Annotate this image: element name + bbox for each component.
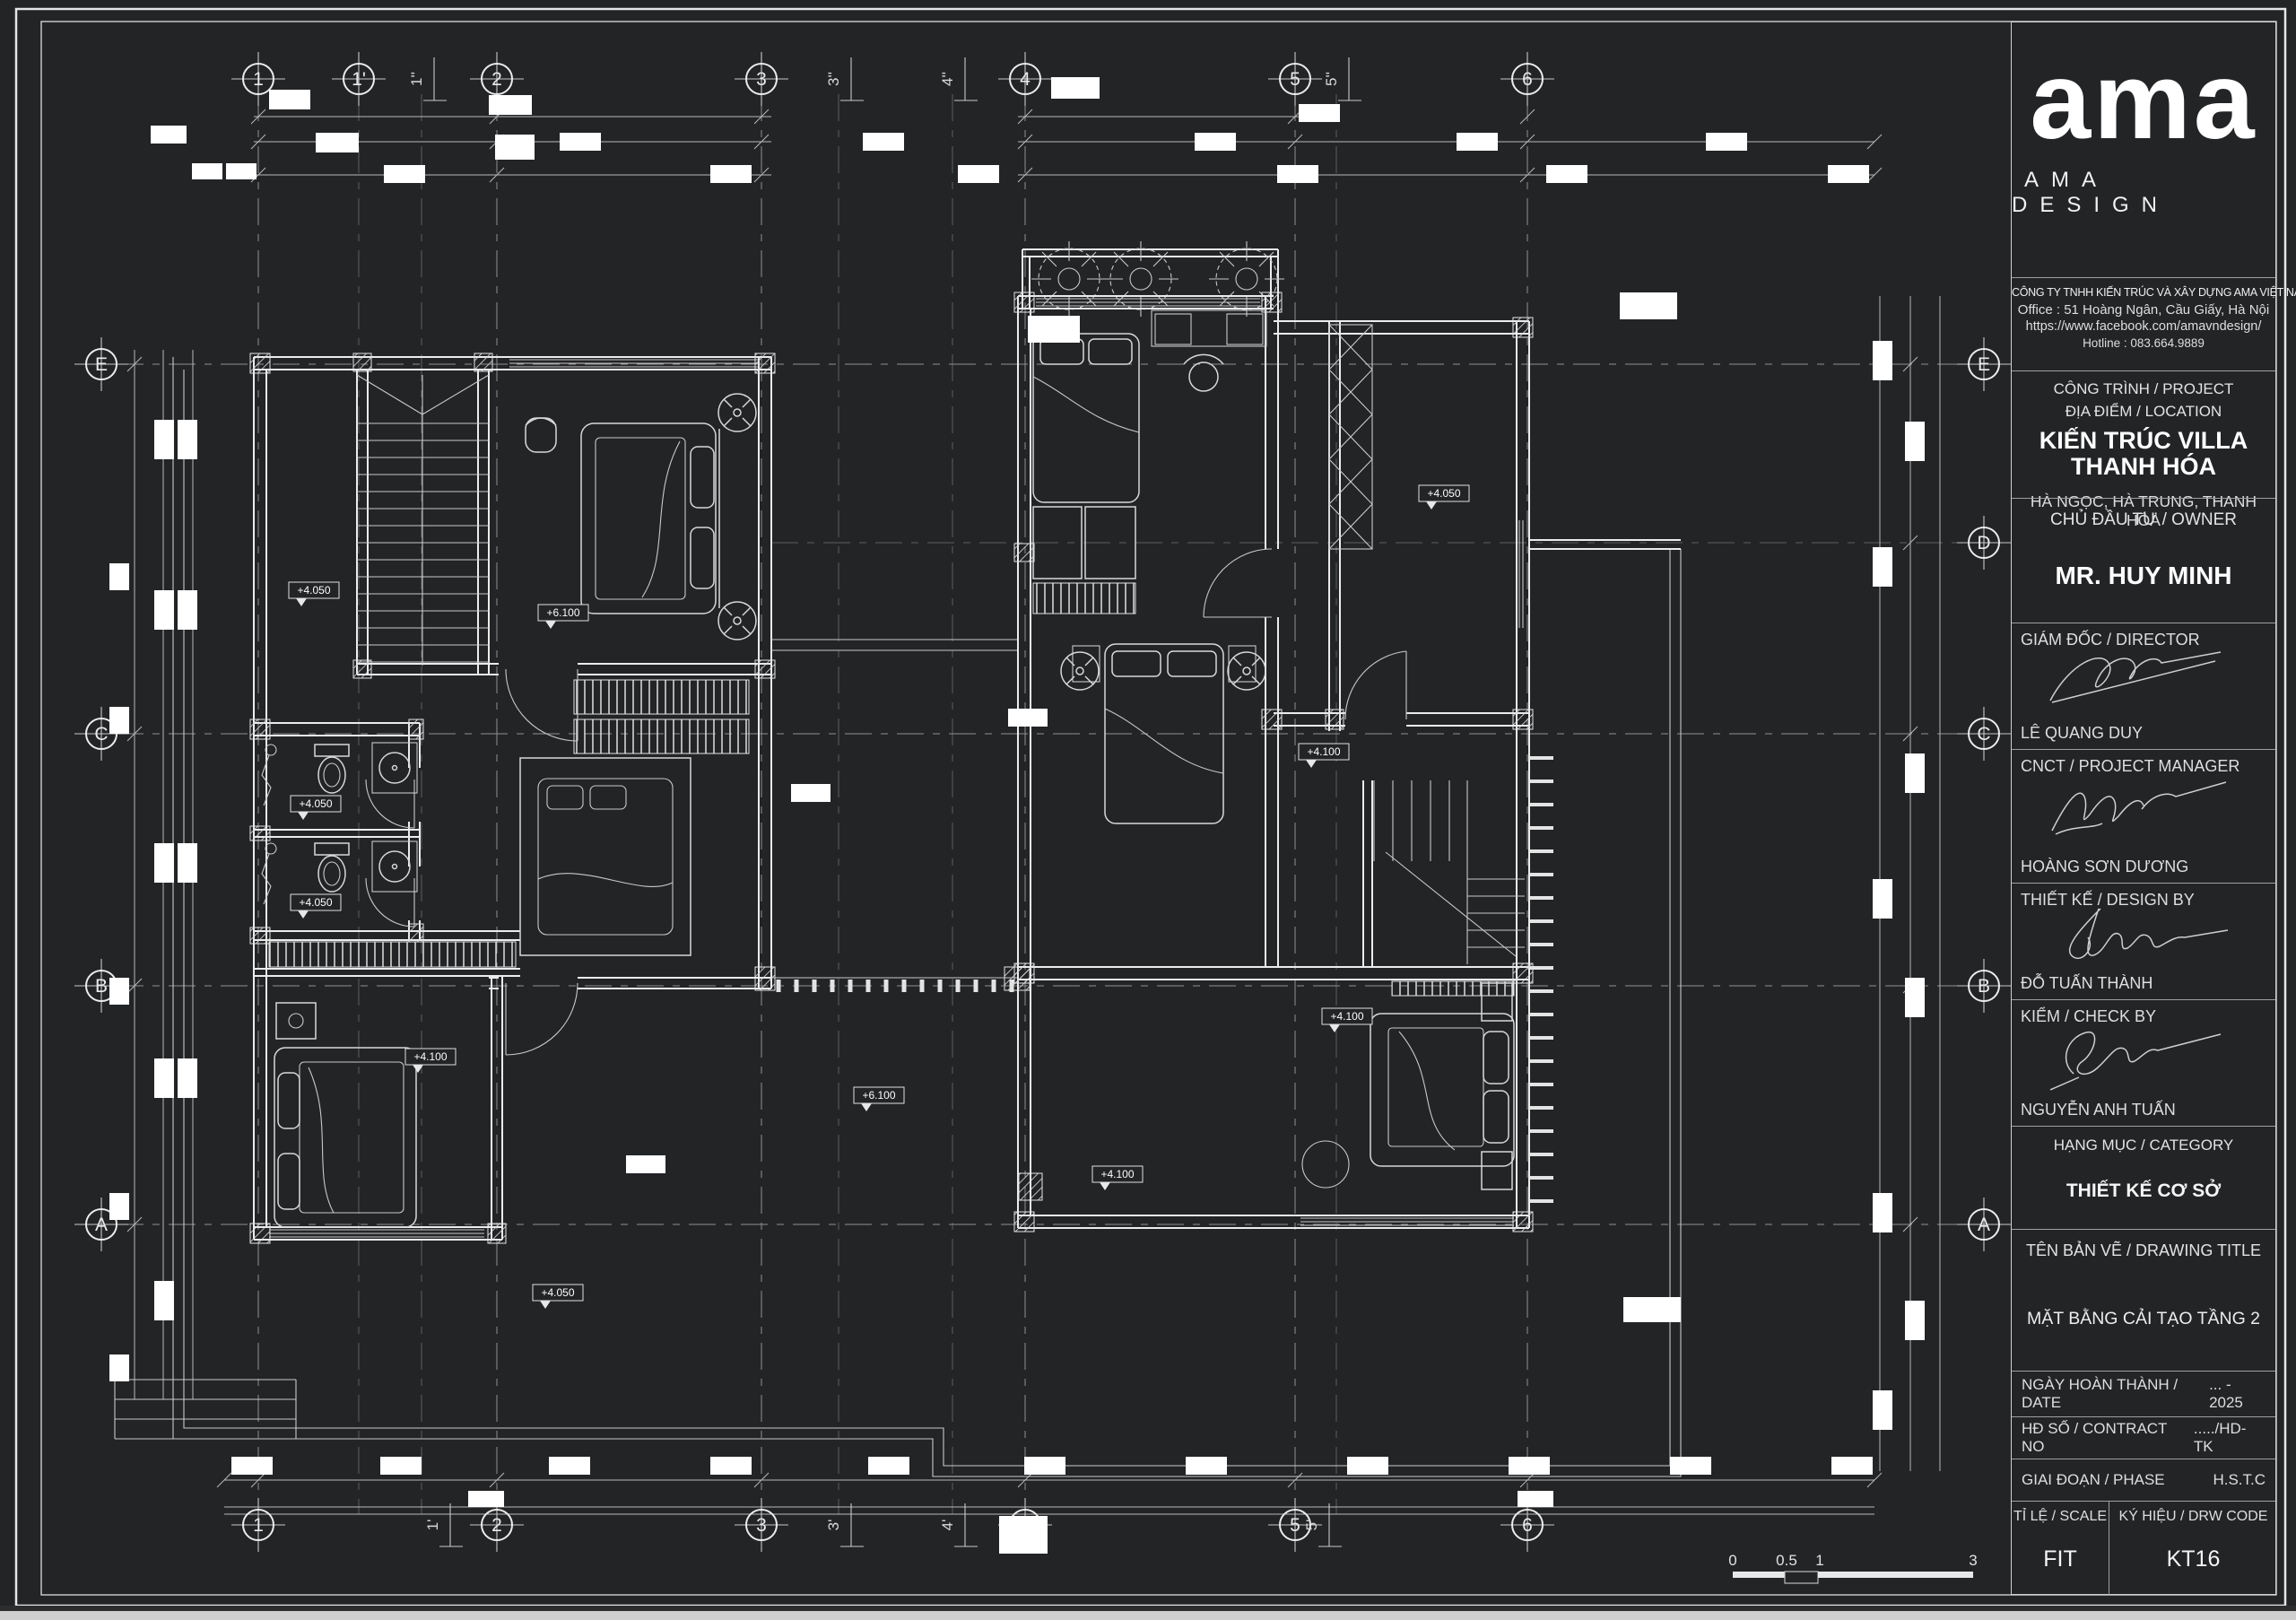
scale-bar: 0 0.5 1 3 (1728, 1552, 1977, 1583)
manager-signature (2043, 771, 2240, 847)
louver-fins (1530, 758, 1553, 1201)
logo-section: ama AMA DESIGN (2012, 22, 2275, 277)
right-block (1014, 241, 1681, 1232)
category-section: HẠNG MỤC / CATEGORY THIẾT KẾ CƠ SỞ (2012, 1126, 2275, 1229)
director-signature (2043, 645, 2240, 713)
project-section: CÔNG TRÌNH / PROJECT ĐỊA ĐIỂM / LOCATION… (2012, 370, 2275, 498)
checker-name: NGUYỄN ANH TUẤN (2021, 1101, 2176, 1119)
contract-value: ...../HD-TK (2194, 1420, 2266, 1456)
bed (274, 1048, 416, 1227)
grid-bubble: 3 (735, 52, 788, 106)
owner-section: CHỦ ĐẦU TƯ / OWNER MR. HUY MINH (2012, 498, 2275, 623)
svg-text:5': 5' (1303, 1520, 1320, 1531)
grid-bubble: 6 (1500, 52, 1554, 106)
svg-text:A: A (95, 1215, 108, 1235)
designer-section: THIẾT KẾ / DESIGN BY ĐỖ TUẤN THÀNH (2012, 883, 2275, 999)
project-name-line2: THANH HÓA (2071, 453, 2216, 480)
company-name: CÔNG TY TNHH KIẾN TRÚC VÀ XÂY DỰNG AMA V… (2012, 286, 2275, 299)
app-background-strip (0, 1611, 2296, 1620)
svg-text:+4.050: +4.050 (299, 797, 332, 810)
svg-text:B: B (95, 976, 108, 997)
grid-bubble: E (74, 337, 128, 391)
terrace-outline (115, 357, 1681, 1476)
wardrobe (574, 719, 749, 753)
owner-name: MR. HUY MINH (2012, 562, 2275, 590)
svg-text:1: 1 (253, 1515, 264, 1536)
door-arc (506, 669, 578, 741)
owner-label: CHỦ ĐẦU TƯ / OWNER (2012, 508, 2275, 533)
toilet-icon (315, 745, 349, 793)
svg-text:+4.100: +4.100 (1307, 745, 1340, 758)
staircase-right (1374, 780, 1525, 964)
grid-sublabel: 3'' (825, 57, 864, 100)
svg-text:4': 4' (939, 1520, 956, 1531)
grid-bubble: 1 (231, 1498, 285, 1552)
logo-subtitle: AMA DESIGN (2012, 168, 2275, 218)
phase-row: GIAI ĐOẠN / PHASE H.S.T.C (2012, 1459, 2275, 1501)
door-arc (506, 983, 578, 1055)
toilet-icon (315, 843, 349, 892)
scale-code-row: TỈ LỆ / SCALE FIT KÝ HIỆU / DRW CODE KT1… (2012, 1501, 2275, 1596)
desk (1152, 310, 1266, 346)
tree-icon (1031, 241, 1107, 317)
grid-bubble: 5 (1268, 52, 1322, 106)
bed (581, 423, 719, 614)
date-row: NGÀY HOÀN THÀNH / DATE ... - 2025 (2012, 1371, 2275, 1416)
date-value: ... - 2025 (2209, 1376, 2266, 1412)
grid-bubble: 4 (998, 52, 1052, 106)
svg-text:1: 1 (1815, 1552, 1823, 1569)
date-label: NGÀY HOÀN THÀNH / DATE (2022, 1376, 2209, 1412)
svg-text:5: 5 (1290, 1515, 1300, 1536)
grid-axes (117, 94, 1969, 1514)
sink-icon (372, 841, 417, 892)
staircase-left (357, 375, 489, 666)
chair (1184, 354, 1223, 391)
door-arc (1204, 549, 1272, 617)
armchair (526, 418, 556, 452)
grid-label: 1 (253, 69, 264, 90)
ceiling-fan-icon (718, 394, 756, 431)
project-name: KIẾN TRÚC VILLA THANH HÓA (2012, 428, 2275, 480)
svg-text:1': 1' (424, 1520, 441, 1531)
grid-bubble: B (1957, 959, 2011, 1013)
svg-text:3: 3 (756, 1515, 767, 1536)
svg-text:+4.050: +4.050 (297, 584, 330, 597)
door-arc (366, 780, 414, 828)
drawing-title: MẶT BẰNG CẢI TẠO TẦNG 2 (2012, 1309, 2275, 1329)
svg-text:5'': 5'' (1323, 72, 1340, 86)
bed (1033, 334, 1139, 502)
grid-sublabel: 1'' (408, 57, 447, 100)
project-name-line1: KIẾN TRÚC VILLA (2039, 427, 2248, 454)
grid-bubble: A (1957, 1198, 2011, 1251)
ceiling-fan-icon (718, 602, 756, 640)
svg-text:+4.050: +4.050 (299, 896, 332, 909)
company-office: Office : 51 Hoàng Ngân, Cầu Giấy, Hà Nội (2012, 302, 2275, 318)
location-label: ĐỊA ĐIỂM / LOCATION (2012, 401, 2275, 423)
checker-signature (2043, 1022, 2240, 1093)
svg-text:E: E (95, 354, 108, 375)
ceiling-fan-icon (1228, 652, 1265, 690)
drw-code-value: KT16 (2109, 1546, 2277, 1572)
grid-sublabel: 5'' (1323, 57, 1361, 100)
svg-text:C: C (94, 724, 108, 745)
closet-column (1329, 325, 1372, 549)
svg-text:+6.100: +6.100 (546, 606, 579, 619)
grid-bubble: E (1957, 337, 2011, 391)
ceiling-fan-icon (1061, 652, 1099, 690)
svg-text:3': 3' (825, 1520, 842, 1531)
tree-icon (1103, 241, 1178, 317)
contract-row: HĐ SỐ / CONTRACT NO ...../HD-TK (2012, 1416, 2275, 1459)
bed (1370, 1014, 1514, 1166)
designer-name: ĐỖ TUẤN THÀNH (2021, 974, 2152, 993)
svg-text:A: A (1978, 1215, 1990, 1235)
door-arc (1345, 651, 1406, 719)
sink-icon (372, 743, 417, 793)
drw-code-label: KÝ HIỆU / DRW CODE (2109, 1509, 2277, 1525)
svg-text:2: 2 (491, 1515, 502, 1536)
grid-label: 3 (756, 69, 767, 90)
grid-label: 2 (491, 69, 502, 90)
grid-sublabel: 3' (825, 1503, 864, 1546)
grid-label: 4 (1020, 69, 1031, 90)
checker-section: KIỂM / CHECK BY NGUYỄN ANH TUẤN (2012, 999, 2275, 1126)
svg-text:+4.100: +4.100 (413, 1050, 447, 1063)
director-section: GIÁM ĐỐC / DIRECTOR LÊ QUANG DUY (2012, 623, 2275, 749)
manager-section: CNCT / PROJECT MANAGER HOÀNG SƠN DƯƠNG (2012, 749, 2275, 883)
drw-code-cell: KÝ HIỆU / DRW CODE KT16 (2109, 1502, 2277, 1596)
drawing-title-label: TÊN BẢN VẼ / DRAWING TITLE (2012, 1239, 2275, 1262)
svg-text:E: E (1978, 354, 1990, 375)
svg-text:6: 6 (1522, 1515, 1533, 1536)
grid-label: 5 (1290, 69, 1300, 90)
company-hotline: Hotline : 083.664.9889 (2012, 336, 2275, 350)
grid-label: 6 (1522, 69, 1533, 90)
category-value: THIẾT KẾ CƠ SỞ (2012, 1180, 2275, 1202)
balustrade (778, 980, 1012, 992)
company-info: CÔNG TY TNHH KIẾN TRÚC VÀ XÂY DỰNG AMA V… (2012, 277, 2275, 370)
designer-signature (2043, 905, 2240, 968)
floor-plan-canvas[interactable]: 1 1' 2 3 4 5 6 1'' 3'' 4'' 5'' 1 2 3 4 5… (0, 0, 2296, 1620)
scale-label: TỈ LỆ / SCALE (2012, 1509, 2109, 1525)
svg-text:D: D (1977, 533, 1990, 553)
door-arc (366, 878, 414, 927)
canopy-bed (520, 758, 691, 955)
phase-value: H.S.T.C (2213, 1471, 2266, 1489)
svg-text:1'': 1'' (408, 72, 425, 86)
grid-sublabel: 4'' (939, 57, 978, 100)
nightstand (1482, 1152, 1512, 1189)
svg-text:B: B (1978, 976, 1990, 997)
svg-text:+4.050: +4.050 (1427, 487, 1460, 500)
project-label: CÔNG TRÌNH / PROJECT (2012, 379, 2275, 401)
grid-bubbles-left: E C B A (74, 337, 128, 1251)
svg-text:+4.050: +4.050 (541, 1286, 574, 1299)
wall-piers (1014, 292, 1533, 1232)
svg-text:+6.100: +6.100 (862, 1089, 895, 1102)
drawing-title-section: TÊN BẢN VẼ / DRAWING TITLE MẶT BẰNG CẢI … (2012, 1229, 2275, 1371)
title-block: ama AMA DESIGN CÔNG TY TNHH KIẾN TRÚC VÀ… (2011, 22, 2276, 1595)
svg-text:0.5: 0.5 (1776, 1552, 1797, 1569)
grid-sublabel: 1' (424, 1503, 463, 1546)
scale-value: FIT (2012, 1546, 2109, 1572)
contract-label: HĐ SỐ / CONTRACT NO (2022, 1420, 2194, 1456)
svg-text:3: 3 (1969, 1552, 1977, 1569)
grid-sublabel: 4' (939, 1503, 978, 1546)
center-void (771, 640, 1042, 1200)
wardrobe (574, 680, 749, 714)
level-tags: +4.050 +4.050 +4.100 +6.100 +4.100 +4.10… (289, 485, 1469, 1309)
svg-text:+4.100: +4.100 (1330, 1010, 1363, 1023)
grid-bubble: 3 (735, 1498, 788, 1552)
category-label: HẠNG MỤC / CATEGORY (2012, 1135, 2275, 1157)
rug (1302, 1141, 1349, 1188)
svg-text:0: 0 (1728, 1552, 1736, 1569)
drawing-sheet: 1 1' 2 3 4 5 6 1'' 3'' 4'' 5'' 1 2 3 4 5… (0, 0, 2296, 1620)
ama-logo: ama (2030, 46, 2257, 155)
wardrobe (1033, 583, 1135, 614)
grid-label: 1' (352, 69, 366, 90)
svg-text:4'': 4'' (939, 72, 956, 86)
wardrobe (269, 942, 516, 967)
grid-bubbles-bottom: 1 2 3 4 5 6 1' 3' 4' 5' (231, 1498, 1554, 1552)
grid-bubbles-right: E D C B A (1957, 337, 2011, 1251)
phase-label: GIAI ĐOẠN / PHASE (2022, 1471, 2165, 1489)
svg-text:C: C (1977, 724, 1990, 745)
company-facebook[interactable]: https://www.facebook.com/amavndesign/ (2012, 319, 2275, 334)
grid-bubbles-top: 1 1' 2 3 4 5 6 1'' 3'' 4'' 5'' (231, 52, 1554, 106)
svg-text:+4.100: +4.100 (1100, 1168, 1134, 1180)
director-name: LÊ QUANG DUY (2021, 724, 2143, 743)
manager-name: HOÀNG SƠN DƯƠNG (2021, 858, 2188, 876)
grid-bubble: 1' (332, 52, 386, 106)
grid-bubble: D (1957, 516, 2011, 570)
grid-bubble: C (1957, 707, 2011, 761)
svg-text:3'': 3'' (825, 72, 842, 86)
scale-cell: TỈ LỆ / SCALE FIT (2012, 1502, 2109, 1596)
nightstand (1229, 646, 1256, 682)
nightstand (276, 1003, 316, 1039)
